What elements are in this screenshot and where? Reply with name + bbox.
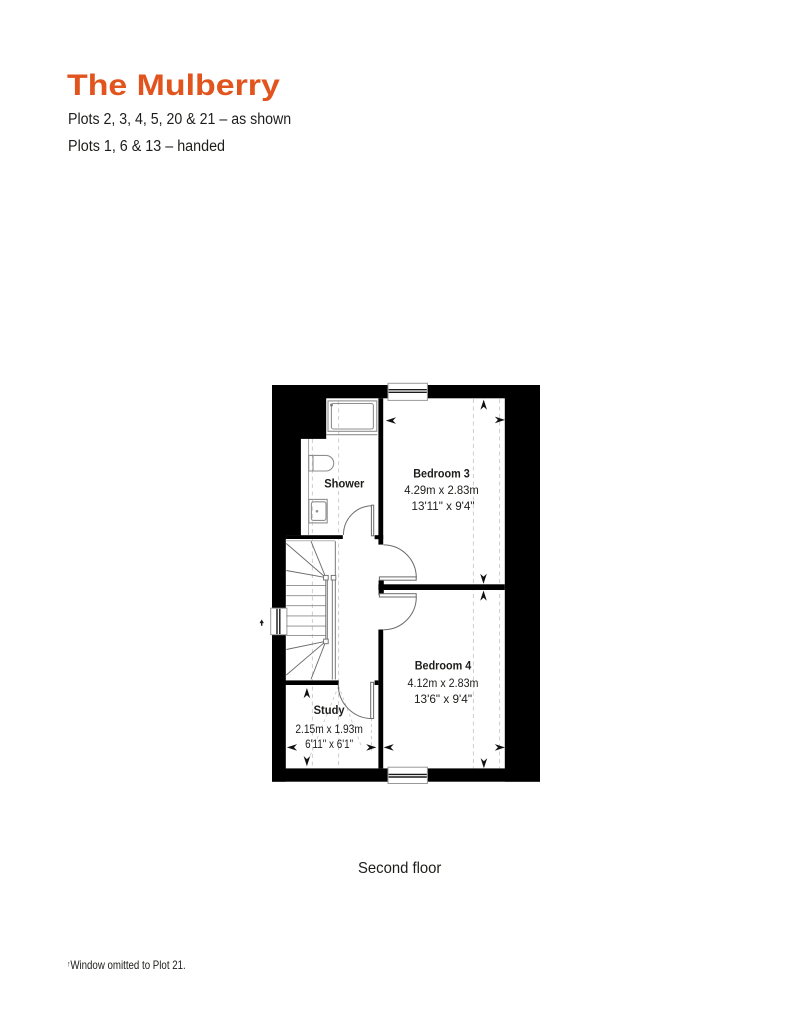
svg-text:Bedroom 4: Bedroom 4 (415, 659, 472, 673)
svg-text:Study: Study (314, 703, 345, 717)
svg-text:4.29m x 2.83m: 4.29m x 2.83m (404, 483, 479, 497)
svg-text:13'6" x 9'4": 13'6" x 9'4" (414, 692, 472, 706)
svg-text:Shower: Shower (324, 477, 364, 491)
svg-text:Bedroom 3: Bedroom 3 (413, 466, 470, 480)
svg-text:6'11" x 6'1": 6'11" x 6'1" (305, 737, 353, 751)
svg-text:4.12m x 2.83m: 4.12m x 2.83m (408, 676, 479, 690)
svg-text:2.15m x 1.93m: 2.15m x 1.93m (295, 722, 363, 736)
svg-text:13'11" x 9'4": 13'11" x 9'4" (412, 499, 475, 513)
